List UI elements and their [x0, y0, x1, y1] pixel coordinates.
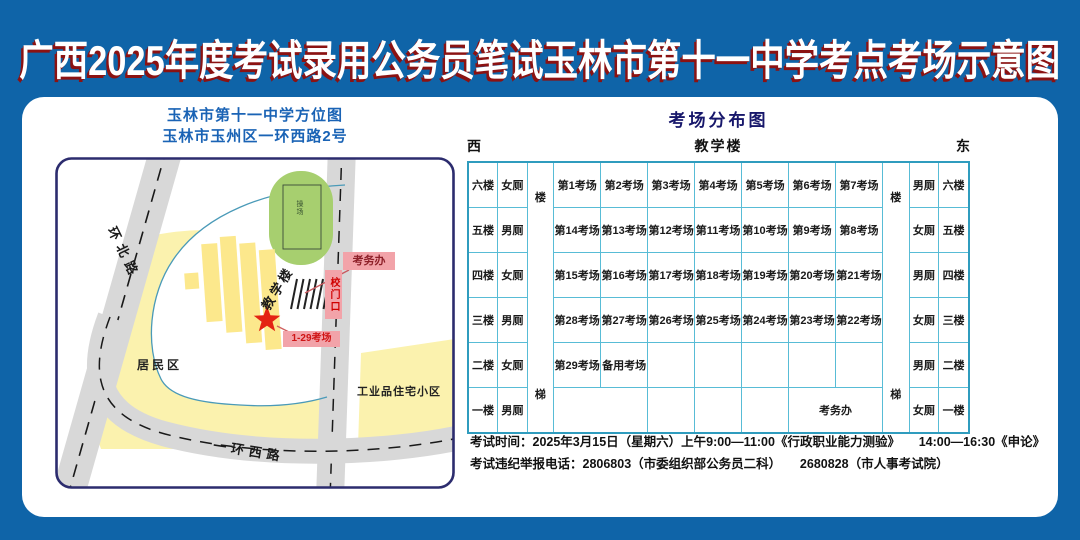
floor-cell: 二楼: [468, 343, 498, 388]
toilet-cell: 女厕: [909, 298, 939, 343]
room-cell: 备用考场: [601, 343, 648, 388]
building-label: 教学楼: [527, 136, 910, 156]
industrial-label: 工业品住宅小区: [357, 383, 441, 399]
floor-cell: 六楼: [939, 162, 969, 208]
content-panel: 玉林市第十一中学方位图 玉林市玉州区一环西路2号: [22, 97, 1058, 517]
room-cell: 第5考场: [742, 162, 789, 208]
empty-cell: [554, 388, 648, 434]
room-cell: 第23考场: [789, 298, 836, 343]
floor-cell: 五楼: [468, 208, 498, 253]
floor-cell: 二楼: [939, 343, 969, 388]
table-row: 六楼女厕楼梯第1考场第2考场第3考场第4考场第5考场第6考场第7考场楼梯男厕六楼: [468, 162, 969, 208]
toilet-cell: 男厕: [909, 253, 939, 298]
room-cell: 第27考场: [601, 298, 648, 343]
toilet-cell: 女厕: [498, 343, 528, 388]
room-cell: 第1考场: [554, 162, 601, 208]
stairs-cell: 楼梯: [883, 162, 910, 433]
room-cell: 第16考场: [601, 253, 648, 298]
floor-cell: 三楼: [468, 298, 498, 343]
toilet-cell: 男厕: [498, 208, 528, 253]
floor-cell: 六楼: [468, 162, 498, 208]
orientation-row: 西 教学楼 东: [467, 135, 970, 157]
floor-cell: 四楼: [468, 253, 498, 298]
map-title-line1: 玉林市第十一中学方位图: [55, 104, 455, 125]
room-cell: 第18考场: [695, 253, 742, 298]
empty-cell: [836, 343, 883, 388]
room-cell: 第21考场: [836, 253, 883, 298]
report-phone-line: 考试违纪举报电话：2806803（市委组织部公务员二科） 2680828（市人事…: [470, 453, 1050, 472]
room-cell: 第14考场: [554, 208, 601, 253]
page-title: 广西2025年度考试录用公务员笔试玉林市第十一中学考点考场示意图: [0, 22, 1080, 92]
room-cell: 第28考场: [554, 298, 601, 343]
room-cell: 第6考场: [789, 162, 836, 208]
location-map: 环北路 操场 教学楼 考务办 校门口 1-29考场 居民区 工业品住宅小区 一环…: [55, 157, 455, 489]
room-cell: 第19考场: [742, 253, 789, 298]
floor-cell: 一楼: [939, 388, 969, 434]
room-cell: 第7考场: [836, 162, 883, 208]
stairs-char: 梯: [535, 386, 546, 402]
school-gate-tag: 校门口: [325, 270, 342, 319]
floor-cell: 一楼: [468, 388, 498, 434]
room-cell: 第12考场: [648, 208, 695, 253]
page-title-text: 广西2025年度考试录用公务员笔试玉林市第十一中学考点考场示意图: [20, 27, 1061, 88]
toilet-cell: 男厕: [498, 388, 528, 434]
room-cell: 第2考场: [601, 162, 648, 208]
playground-label: 操场: [294, 200, 304, 216]
rooms-range-tag: 1-29考场: [283, 331, 340, 347]
toilet-cell: 男厕: [909, 343, 939, 388]
exam-time-line: 考试时间：2025年3月15日（星期六）上午9:00—11:00《行政职业能力测…: [470, 431, 1050, 450]
room-cell: 第24考场: [742, 298, 789, 343]
distribution-table-body: 六楼女厕楼梯第1考场第2考场第3考场第4考场第5考场第6考场第7考场楼梯男厕六楼…: [468, 162, 969, 433]
room-cell: 第10考场: [742, 208, 789, 253]
empty-cell: [789, 343, 836, 388]
floor-cell: 四楼: [939, 253, 969, 298]
stairs-cell: 楼梯: [527, 162, 554, 433]
east-label: 东: [910, 136, 970, 156]
room-cell: 第13考场: [601, 208, 648, 253]
room-cell: 第25考场: [695, 298, 742, 343]
empty-cell: [742, 388, 789, 434]
room-cell: 第3考场: [648, 162, 695, 208]
room-cell: 考务办: [789, 388, 883, 434]
room-cell: 第29考场: [554, 343, 601, 388]
toilet-cell: 女厕: [909, 208, 939, 253]
toilet-cell: 男厕: [909, 162, 939, 208]
empty-cell: [742, 343, 789, 388]
empty-cell: [695, 343, 742, 388]
toilet-cell: 女厕: [498, 253, 528, 298]
empty-cell: [648, 343, 695, 388]
room-cell: 第22考场: [836, 298, 883, 343]
room-cell: 第11考场: [695, 208, 742, 253]
floor-cell: 五楼: [939, 208, 969, 253]
stairs-char: 楼: [535, 189, 546, 205]
stairs-char: 梯: [890, 386, 901, 402]
room-cell: 第8考场: [836, 208, 883, 253]
empty-cell: [648, 388, 695, 434]
map-graphic: [55, 157, 455, 489]
room-cell: 第20考场: [789, 253, 836, 298]
map-address-line: 玉林市玉州区一环西路2号: [55, 125, 455, 146]
residential-label: 居民区: [137, 356, 182, 373]
toilet-cell: 女厕: [909, 388, 939, 434]
west-label: 西: [467, 136, 527, 156]
room-cell: 第26考场: [648, 298, 695, 343]
stairs-char: 楼: [890, 189, 901, 205]
distribution-title: 考场分布图: [467, 106, 970, 131]
room-cell: 第15考场: [554, 253, 601, 298]
distribution-table: 六楼女厕楼梯第1考场第2考场第3考场第4考场第5考场第6考场第7考场楼梯男厕六楼…: [467, 161, 970, 434]
floor-cell: 三楼: [939, 298, 969, 343]
room-cell: 第4考场: [695, 162, 742, 208]
empty-cell: [695, 388, 742, 434]
toilet-cell: 女厕: [498, 162, 528, 208]
room-cell: 第17考场: [648, 253, 695, 298]
toilet-cell: 男厕: [498, 298, 528, 343]
exam-office-tag: 考务办: [343, 252, 395, 270]
room-cell: 第9考场: [789, 208, 836, 253]
